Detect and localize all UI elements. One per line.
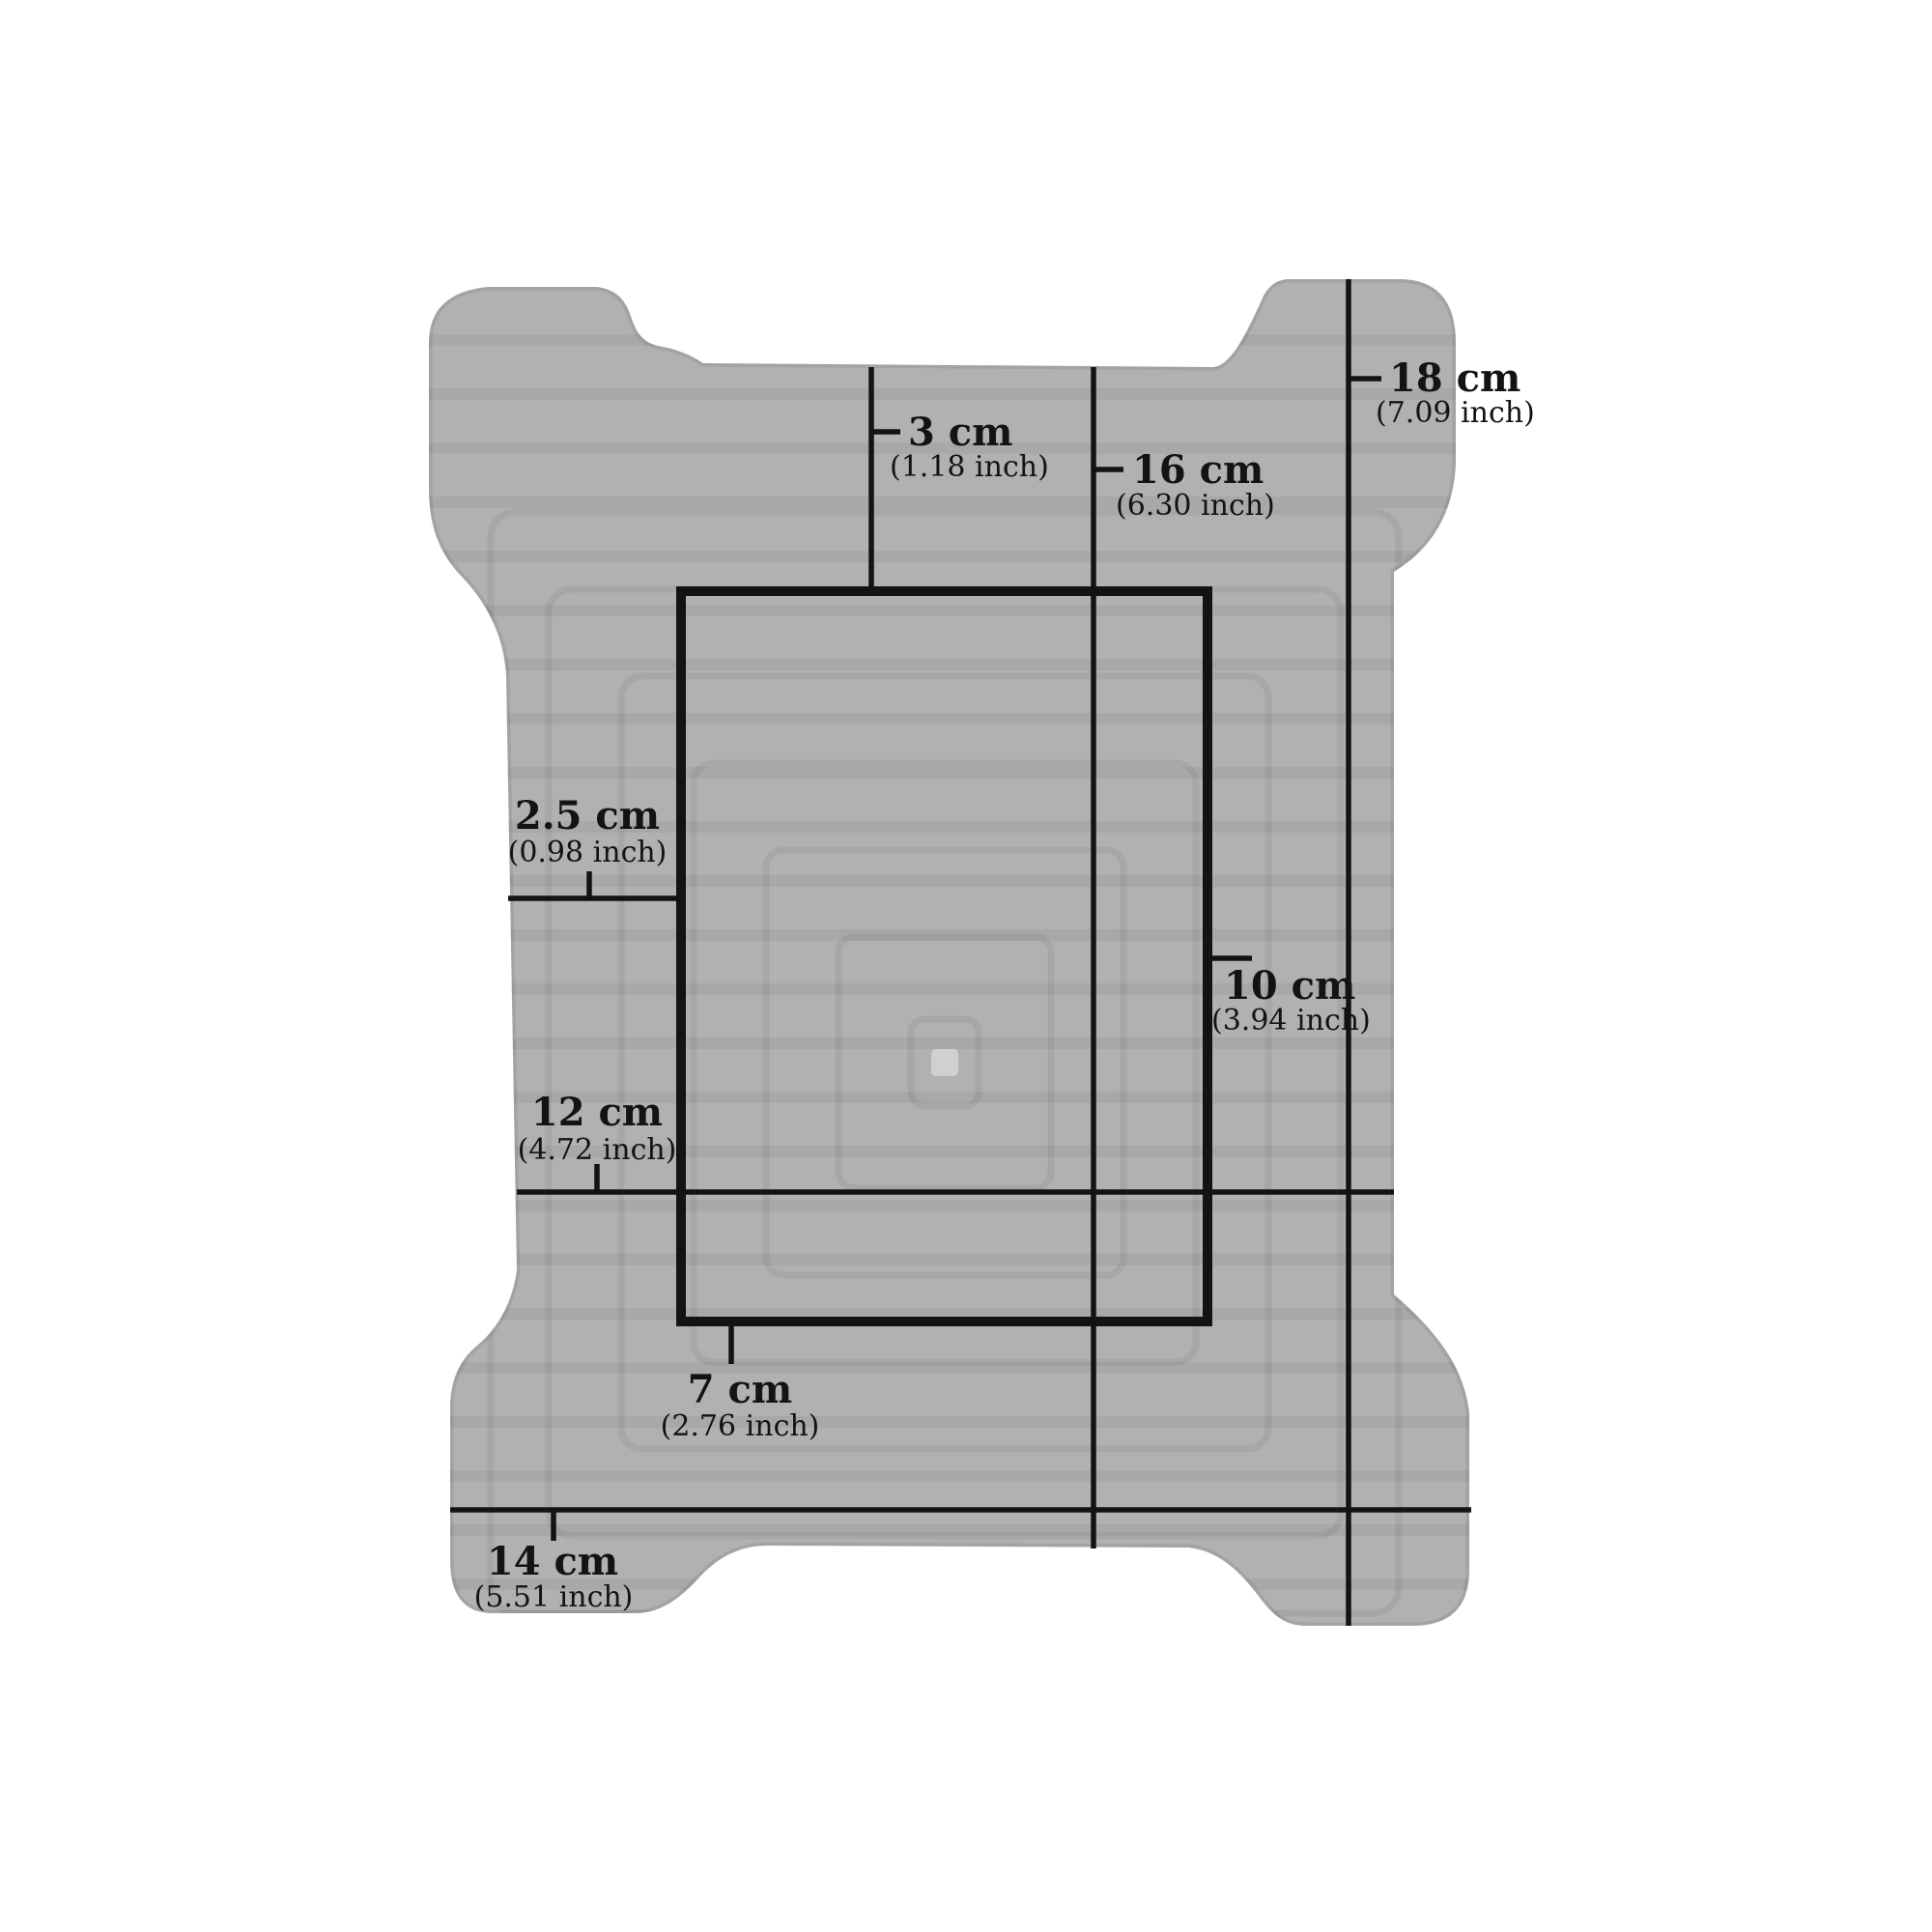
left-margin-inch-label: (0.98 inch) bbox=[508, 836, 668, 869]
middle-height-inch-label: (6.30 inch) bbox=[1116, 489, 1275, 523]
inner-height-inch-label: (3.94 inch) bbox=[1211, 1004, 1371, 1037]
left-margin-cm-label: 2.5 cm bbox=[515, 793, 660, 838]
quilt-center-dot bbox=[931, 1049, 958, 1076]
overall-width-inch-label: (5.51 inch) bbox=[474, 1580, 634, 1614]
overall-width-cm-label: 14 cm bbox=[487, 1539, 618, 1584]
middle-width-inch-label: (4.72 inch) bbox=[518, 1133, 677, 1167]
overall-height-cm-label: 18 cm bbox=[1389, 355, 1520, 401]
inner-height-cm-label: 10 cm bbox=[1224, 963, 1355, 1009]
inner-width-cm-label: 7 cm bbox=[688, 1367, 792, 1412]
diagram-svg: 3 cm (1.18 inch) 16 cm (6.30 inch) 18 cm… bbox=[0, 0, 1932, 1932]
middle-height-cm-label: 16 cm bbox=[1132, 447, 1264, 493]
overall-height-inch-label: (7.09 inch) bbox=[1376, 396, 1535, 430]
middle-width-cm-label: 12 cm bbox=[531, 1090, 663, 1135]
product-dimension-diagram: 3 cm (1.18 inch) 16 cm (6.30 inch) 18 cm… bbox=[0, 0, 1932, 1932]
top-margin-cm-label: 3 cm bbox=[908, 410, 1012, 455]
top-margin-inch-label: (1.18 inch) bbox=[890, 450, 1049, 484]
inner-width-inch-label: (2.76 inch) bbox=[661, 1409, 820, 1443]
